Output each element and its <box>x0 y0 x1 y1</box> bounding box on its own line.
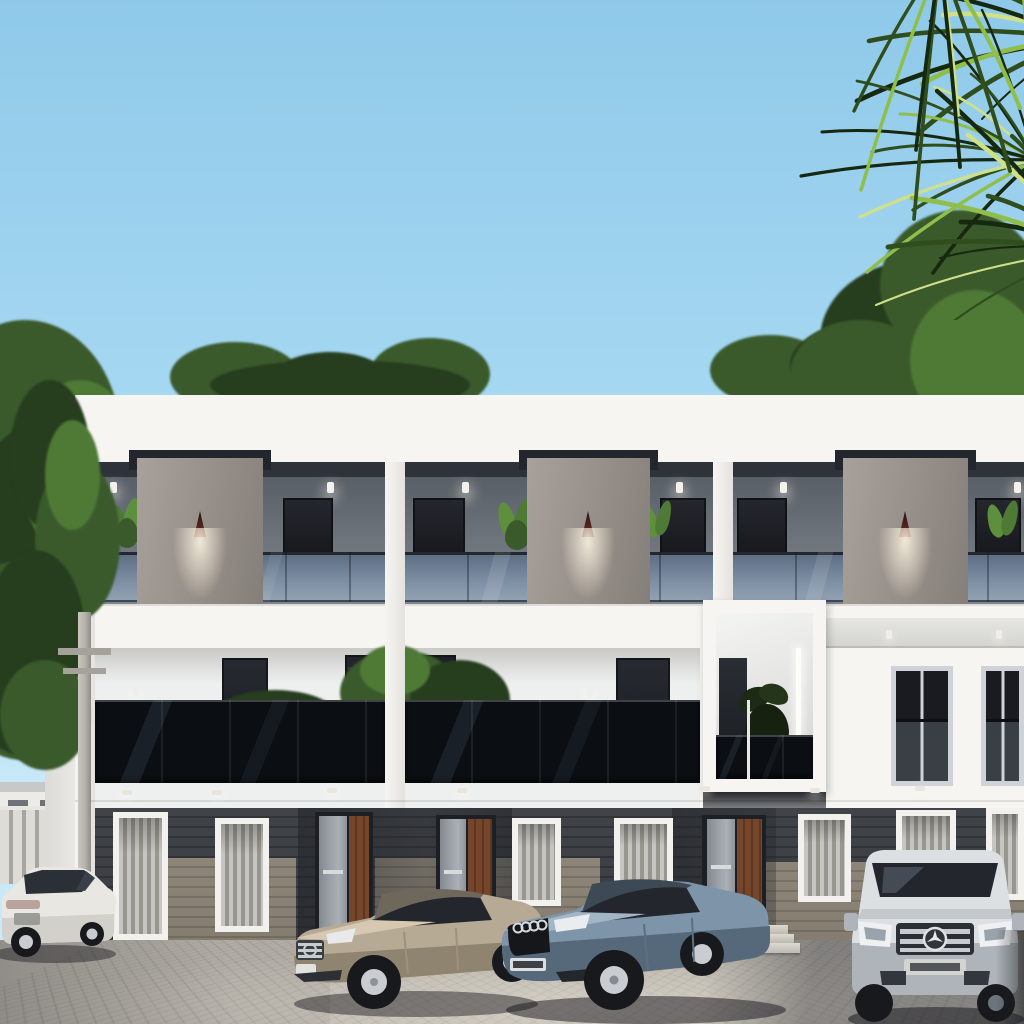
facade-window <box>981 666 1024 786</box>
sconce-glow <box>172 528 228 602</box>
porch-light-icon <box>810 788 820 793</box>
blue-gray-sedan <box>496 868 802 1024</box>
box-balcony <box>703 600 826 792</box>
downlight-icon <box>462 482 469 493</box>
porch-light-icon <box>122 790 132 795</box>
downlight-icon <box>1014 482 1021 493</box>
tree-overhang <box>0 360 150 780</box>
sconce-glow <box>877 528 933 602</box>
porch-light-icon <box>327 788 337 793</box>
sconce-glow <box>560 528 616 602</box>
architectural-rendering <box>0 0 1024 1024</box>
balcony-window <box>413 498 465 556</box>
balcony-window <box>737 498 787 556</box>
utility-pole <box>78 612 91 880</box>
facade-window <box>891 666 953 786</box>
downlight-icon <box>996 630 1002 639</box>
box-glass <box>716 735 813 779</box>
facade-column <box>385 462 405 604</box>
corner-shadow <box>996 930 1024 1024</box>
ground-window <box>215 818 269 932</box>
downlight-icon <box>886 630 892 639</box>
porch-light-icon <box>457 788 467 793</box>
porch-light-icon <box>915 786 925 791</box>
facade-column <box>713 462 733 604</box>
facade-column <box>385 604 405 810</box>
downlight-icon <box>780 482 787 493</box>
porch-light-icon <box>212 790 222 795</box>
downlight-icon <box>676 482 683 493</box>
porch-light-icon <box>700 786 710 791</box>
downlight-icon <box>327 482 334 493</box>
white-sedan <box>0 858 122 966</box>
downlight-icon <box>587 688 593 697</box>
overhang-soffit <box>826 618 1024 648</box>
balcony-window <box>283 498 333 556</box>
balcony-plant <box>986 500 1024 558</box>
dark-glass-balustrade <box>405 700 700 783</box>
